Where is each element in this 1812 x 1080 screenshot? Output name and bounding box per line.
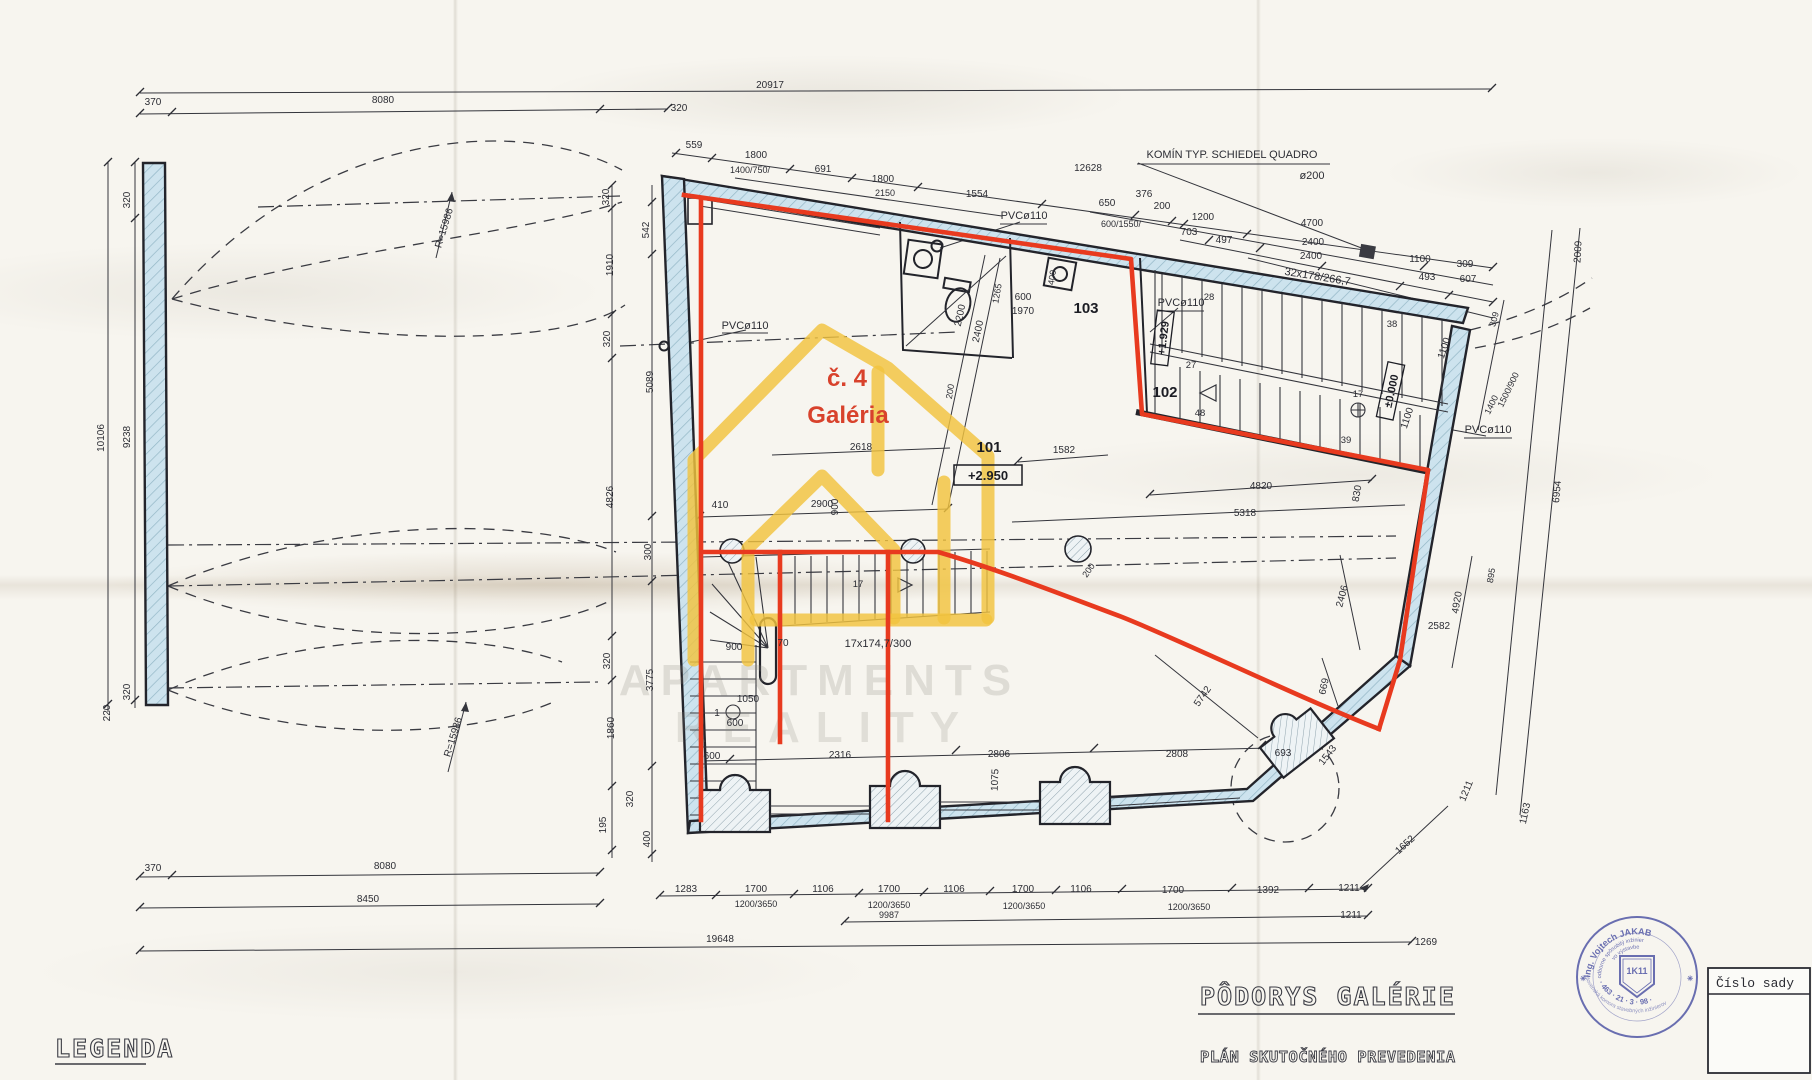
stair-direction-arrow <box>1200 385 1216 401</box>
chimney-note: KOMÍN TYP. SCHIEDEL QUADRO <box>1147 148 1318 161</box>
dim-label: 9238 <box>122 425 133 448</box>
dim-label: 1 <box>714 708 720 719</box>
dim-label: 703 <box>1181 227 1198 238</box>
pvc-note: PVCø110 <box>1001 210 1048 222</box>
dim-label: 320 <box>602 330 613 347</box>
watermark-line2: REALITY <box>675 703 975 752</box>
dim-label: 559 <box>686 140 703 151</box>
dim-label: 600 <box>704 751 721 762</box>
pvc-pipe <box>660 342 669 351</box>
watermark-line1: APARTMENTS <box>619 656 1021 705</box>
dim-label: 1582 <box>1053 445 1076 456</box>
dim-label: 4920 <box>1450 590 1465 614</box>
dim-label: 1265 <box>990 283 1003 304</box>
dim-label: 1700 <box>878 884 901 895</box>
dim-label: 8080 <box>372 95 395 106</box>
pvc-note: PVCø110 <box>1465 424 1512 436</box>
dim-label: 5318 <box>1234 508 1257 519</box>
dim-label: 1106 <box>1070 884 1092 895</box>
step-number: 39 <box>1341 435 1352 446</box>
dim-label: 2806 <box>988 749 1011 760</box>
window-pier <box>1040 767 1110 824</box>
dim-label: 400 <box>1046 269 1058 286</box>
dim-label: 6954 <box>1551 480 1564 504</box>
dim-label: 410 <box>712 500 729 511</box>
dim-label: 2808 <box>1166 749 1189 760</box>
dim-label: 1283 <box>675 884 698 895</box>
dim-label: 900 <box>726 642 743 653</box>
dim-label: 830 <box>1351 484 1365 503</box>
dim-label: 8080 <box>374 861 397 872</box>
dim-label: 669 <box>1317 677 1331 696</box>
dim-label: 220 <box>102 704 113 721</box>
step-number: 38 <box>1387 319 1398 330</box>
radius-note: R=15986 <box>433 207 456 250</box>
room-number-102: 102 <box>1152 384 1177 401</box>
drawing-title: PÔDORYS GALÉRIE <box>1200 981 1456 1011</box>
level-gallery: +2.950 <box>954 465 1022 485</box>
dim-label: 2400 <box>1300 251 1323 262</box>
set-number-label: Číslo sady <box>1716 976 1794 991</box>
dim-label: 20917 <box>756 80 784 91</box>
dim-label: 1100 <box>1409 254 1431 265</box>
stamp-star-left: ✳ <box>1580 974 1587 983</box>
step-number: 48 <box>1195 408 1206 419</box>
dim-label: 493 <box>1419 272 1436 283</box>
unit-number: č. 4 <box>827 365 868 392</box>
dim-label: 1700 <box>1162 885 1185 896</box>
dim-label: 2200 <box>953 303 968 327</box>
dim-label: 8450 <box>357 894 380 905</box>
roof-projection-lines <box>168 141 1592 892</box>
step-number: 17 <box>1353 389 1364 400</box>
dim-label: 497 <box>1216 235 1233 246</box>
dim-label: 2400 <box>971 319 986 343</box>
realty-watermark: APARTMENTS REALITY <box>619 656 1021 752</box>
dim-label: 195 <box>598 816 609 833</box>
dim-label: 3775 <box>645 668 656 691</box>
stamp-chamber: Slovenská komora stavebných inžinierov <box>1583 974 1669 1014</box>
dim-label: 1163 <box>1518 801 1533 825</box>
dim-label: 1800 <box>745 150 768 161</box>
dim-label: 370 <box>145 97 162 108</box>
svg-text:+2.950: +2.950 <box>968 468 1008 483</box>
dim-label: 1106 <box>943 884 965 895</box>
legend-heading: LEGENDA <box>55 1034 174 1063</box>
dim-label: 2150 <box>875 188 895 198</box>
step-number: 27 <box>1186 360 1197 371</box>
dim-label: 600/1550/ <box>1101 219 1142 229</box>
dim-label: 1652 <box>1393 833 1417 856</box>
chimney-diameter: ø200 <box>1299 170 1324 182</box>
dim-label: 320 <box>601 188 612 205</box>
dim-label: 1700 <box>745 884 768 895</box>
dim-label: 1200/3650 <box>735 899 778 909</box>
dim-label: 300 <box>643 543 654 560</box>
winder-formula: 17x174,7/300 <box>845 638 912 650</box>
dim-label: 1400/750/ <box>730 165 771 175</box>
dim-label: 320 <box>602 652 613 669</box>
dim-label: 1211 <box>1458 779 1476 803</box>
dim-label: 376 <box>1136 189 1153 200</box>
dim-label: 370 <box>145 863 162 874</box>
dim-label: 1106 <box>812 884 834 895</box>
dim-label: 10106 <box>96 424 107 452</box>
dim-label: 542 <box>641 221 652 238</box>
engineer-stamp: Ing. Vojtech JAKAB odborne spôsobilý inž… <box>1577 917 1697 1037</box>
dim-label: 1200/3650 <box>1168 902 1211 912</box>
dim-label: 650 <box>1099 198 1116 209</box>
drawing-subtitle: PLÁN SKUTOČNÉHO PREVEDENIA <box>1200 1047 1456 1066</box>
dim-label: 320 <box>122 191 133 208</box>
window-pier <box>870 771 940 828</box>
dim-label: 2582 <box>1428 621 1451 632</box>
dim-label: 5089 <box>645 370 656 393</box>
dim-label: 1500/900 <box>1496 371 1521 409</box>
dim-label: 691 <box>815 164 832 175</box>
dim-label: 200 <box>1080 561 1097 579</box>
dim-label: 400 <box>642 830 653 847</box>
dim-label: 600 <box>727 718 744 729</box>
dim-label: 895 <box>1485 567 1497 584</box>
dim-label: 309 <box>1457 259 1474 270</box>
dim-label: 1211 <box>1338 883 1360 894</box>
dim-label: 2009 <box>1572 240 1584 263</box>
dim-label: 2618 <box>850 442 873 453</box>
dim-label: 1860 <box>606 716 617 739</box>
dim-label: 4826 <box>605 485 616 508</box>
dim-label: 320 <box>122 683 133 700</box>
dim-label: 600 <box>1015 292 1032 303</box>
stamp-shield: 1K11 <box>1620 956 1654 997</box>
pvc-pipe <box>932 241 943 252</box>
dim-label: 900 <box>830 498 841 515</box>
dim-label: 4820 <box>1250 481 1273 492</box>
room-number-101: 101 <box>976 439 1001 456</box>
stamp-star-right: ✳ <box>1687 974 1694 983</box>
unit-name: Galéria <box>807 402 889 429</box>
pvc-note: PVCø110 <box>722 320 769 332</box>
dim-label: 1269 <box>1415 937 1438 948</box>
dim-label: 70 <box>777 638 789 649</box>
dim-label: 1050 <box>737 694 760 705</box>
svg-text:Slovenská komora stavebných in: Slovenská komora stavebných inžinierov <box>1583 974 1669 1014</box>
step-number: 17 <box>853 579 864 590</box>
pvc-note: PVCø110 <box>1158 297 1205 309</box>
dim-label: 1200 <box>1192 212 1215 223</box>
dim-label: 1075 <box>990 768 1002 791</box>
step-number: 28 <box>1204 292 1215 303</box>
dim-label: 320 <box>671 103 688 114</box>
dim-label: 1554 <box>966 189 989 200</box>
dim-label: 19648 <box>706 934 734 945</box>
scanned-floor-plan-sheet: APARTMENTS REALITY 20917 370 8080 320 55… <box>0 0 1812 1080</box>
dim-label: 1392 <box>1257 885 1280 896</box>
dim-label: 2316 <box>829 750 852 761</box>
window-pier <box>700 775 770 832</box>
chimney <box>1359 244 1376 259</box>
left-boundary-wall <box>143 163 168 705</box>
radius-note: R=15986 <box>442 716 465 759</box>
dim-label: 693 <box>1275 748 1292 759</box>
dim-label: 12628 <box>1074 163 1102 174</box>
dim-label: 1200/3650 <box>868 900 911 910</box>
dim-label: 1700 <box>1012 884 1035 895</box>
dim-label: 1970 <box>1012 306 1035 317</box>
title-block: PÔDORYS GALÉRIE PLÁN SKUTOČNÉHO PREVEDEN… <box>55 981 1456 1066</box>
dim-label: 1910 <box>605 253 616 276</box>
dim-label: 200 <box>1154 201 1171 212</box>
room-number-103: 103 <box>1073 300 1098 317</box>
stamp-code: 1K11 <box>1626 966 1647 976</box>
column <box>1065 536 1091 562</box>
dim-label: 2400 <box>1302 237 1325 248</box>
dim-label: 1100 <box>1399 406 1416 430</box>
set-number-box: Číslo sady <box>1708 968 1810 1073</box>
dim-label: 1800 <box>872 174 895 185</box>
dim-label: 320 <box>625 790 636 807</box>
dim-label: 4700 <box>1301 218 1324 229</box>
dim-label: 1211 <box>1340 910 1362 921</box>
dim-label: 9987 <box>879 910 899 920</box>
floor-plan-drawing: APARTMENTS REALITY 20917 370 8080 320 55… <box>0 0 1812 1080</box>
dim-label: 607 <box>1460 274 1477 285</box>
dim-label: 1200/3650 <box>1003 901 1046 911</box>
